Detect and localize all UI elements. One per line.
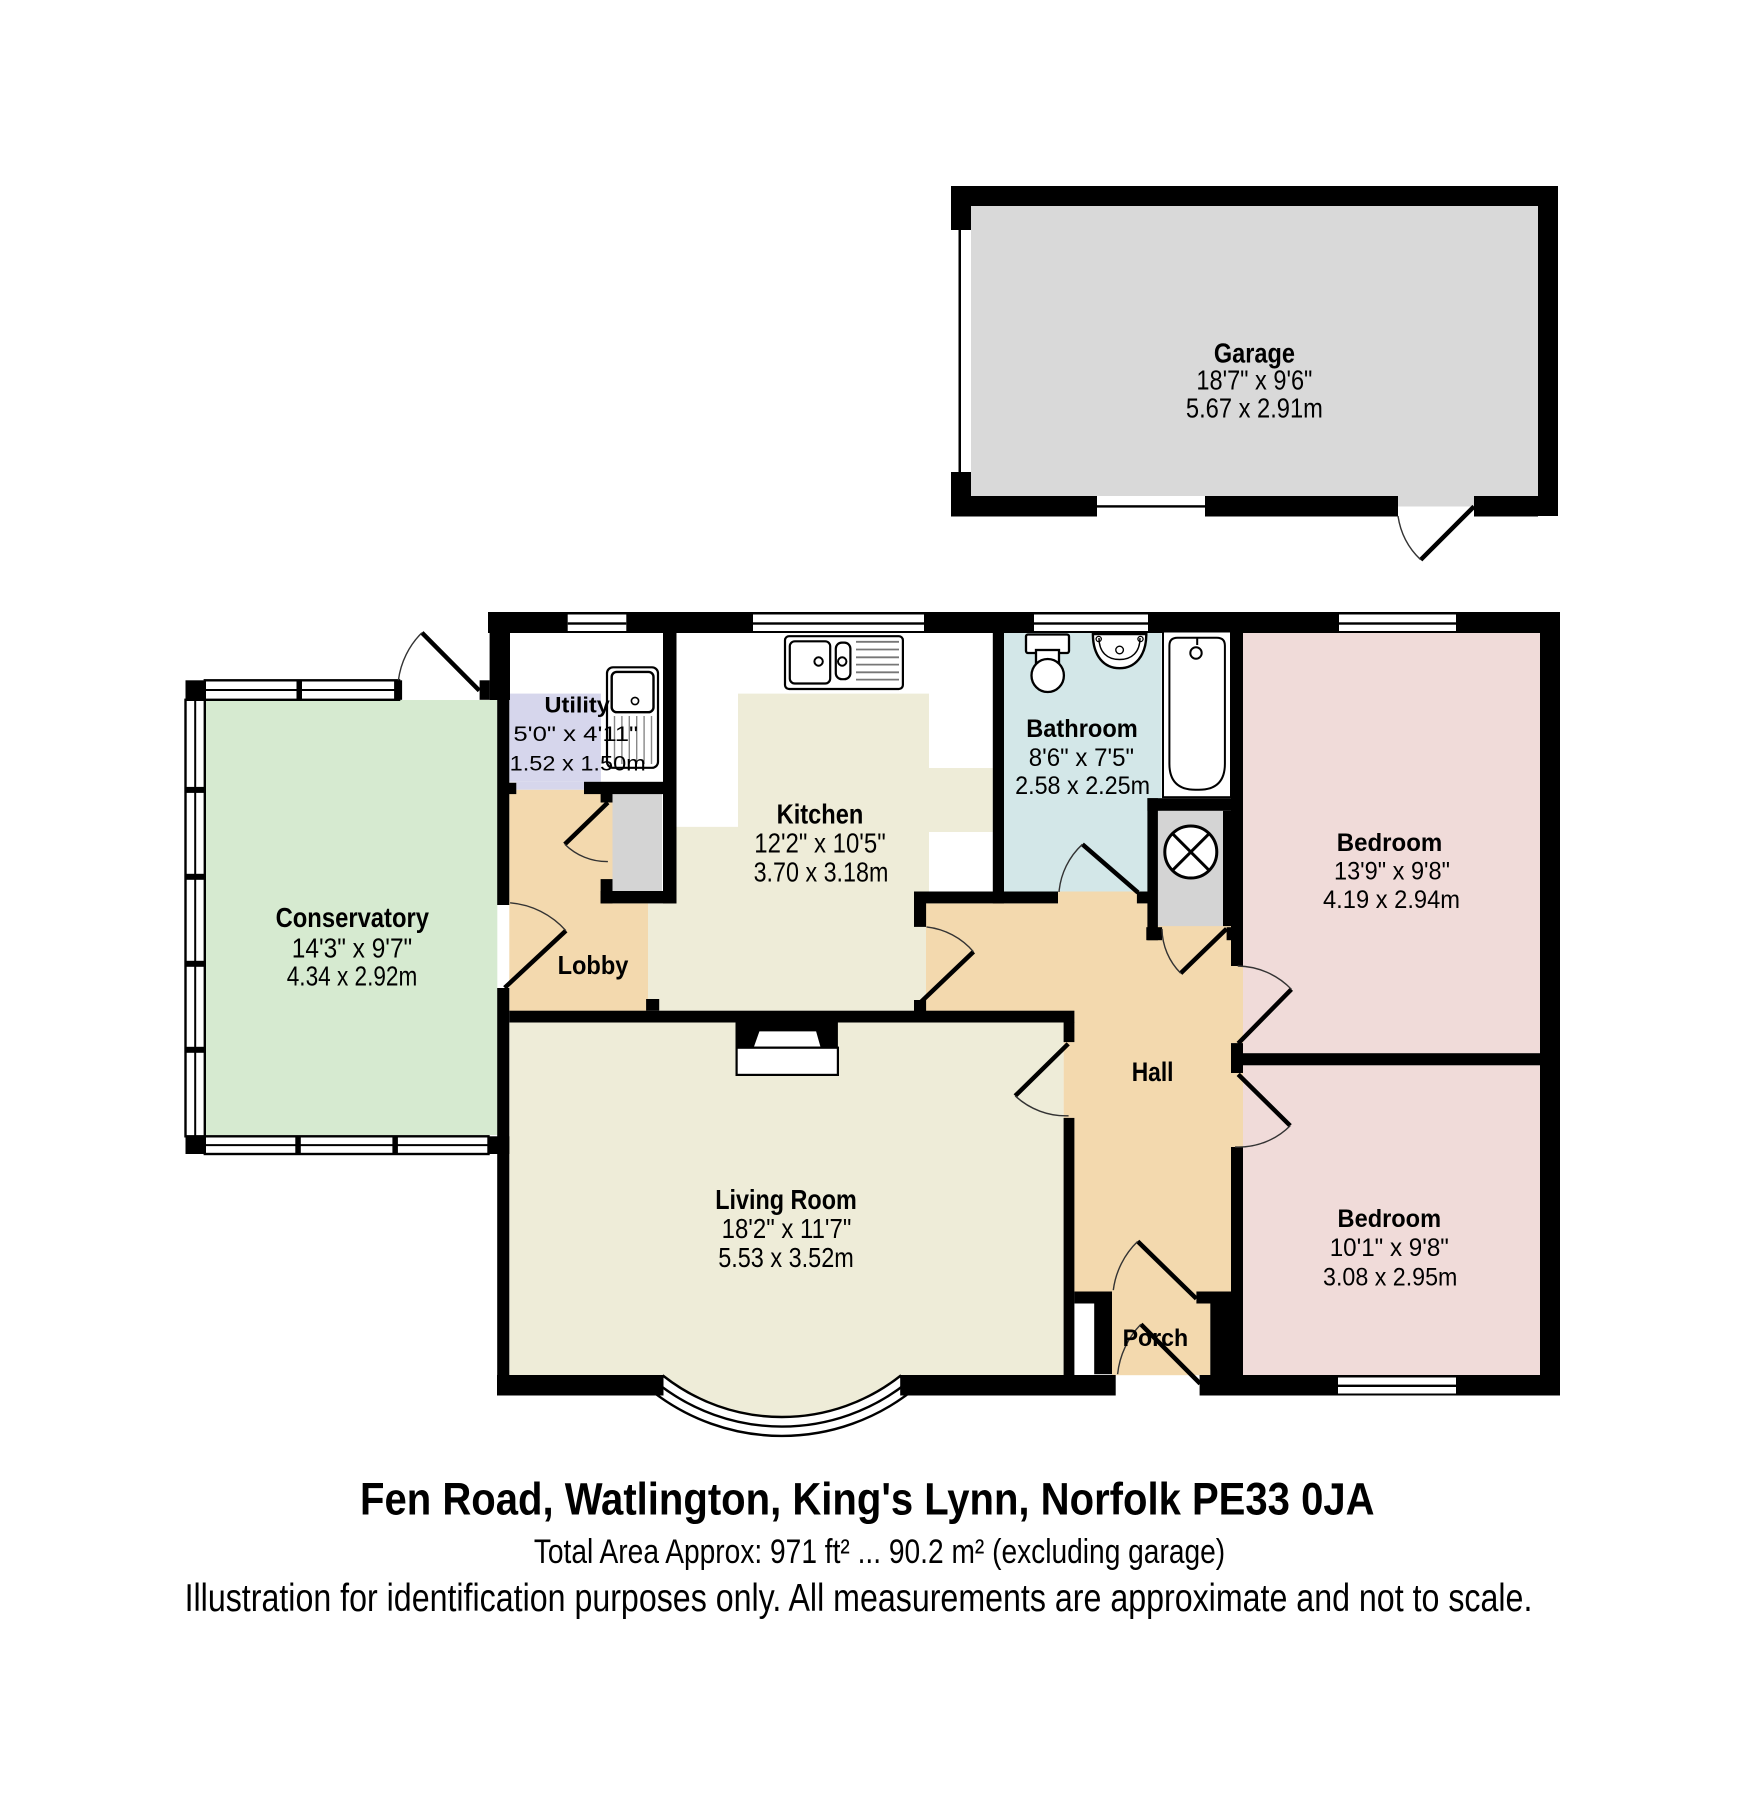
- svg-text:5'0" x 4'11": 5'0" x 4'11": [513, 722, 638, 746]
- svg-text:8'6" x 7'5": 8'6" x 7'5": [1029, 744, 1134, 772]
- svg-text:2.58 x 2.25m: 2.58 x 2.25m: [1015, 772, 1150, 800]
- svg-text:14'3" x 9'7": 14'3" x 9'7": [292, 932, 413, 963]
- svg-text:10'1" x 9'8": 10'1" x 9'8": [1330, 1234, 1449, 1262]
- svg-text:18'7" x 9'6": 18'7" x 9'6": [1196, 365, 1312, 396]
- svg-text:3.70 x 3.18m: 3.70 x 3.18m: [754, 857, 889, 888]
- svg-text:Illustration for identificatio: Illustration for identification purposes…: [185, 1577, 1533, 1620]
- svg-text:Bedroom: Bedroom: [1337, 829, 1443, 857]
- svg-text:Hall: Hall: [1132, 1057, 1174, 1087]
- svg-text:Porch: Porch: [1123, 1325, 1189, 1352]
- svg-text:Bedroom: Bedroom: [1338, 1205, 1442, 1233]
- svg-text:Total Area Approx: 971 ft² ...: Total Area Approx: 971 ft² ... 90.2 m² (…: [534, 1533, 1225, 1571]
- svg-text:Conservatory: Conservatory: [276, 902, 430, 933]
- svg-text:12'2" x 10'5": 12'2" x 10'5": [754, 828, 885, 859]
- svg-text:1.52 x 1.50m: 1.52 x 1.50m: [510, 751, 646, 775]
- svg-text:4.19 x 2.94m: 4.19 x 2.94m: [1323, 886, 1460, 914]
- svg-text:13'9" x 9'8": 13'9" x 9'8": [1334, 858, 1450, 886]
- svg-text:5.53 x 3.52m: 5.53 x 3.52m: [718, 1242, 854, 1273]
- svg-text:3.08 x 2.95m: 3.08 x 2.95m: [1323, 1263, 1457, 1291]
- svg-text:5.67 x 2.91m: 5.67 x 2.91m: [1186, 393, 1323, 424]
- svg-text:18'2" x 11'7": 18'2" x 11'7": [722, 1213, 852, 1244]
- svg-text:4.34 x 2.92m: 4.34 x 2.92m: [287, 960, 418, 991]
- svg-text:Kitchen: Kitchen: [777, 799, 864, 830]
- svg-text:Utility: Utility: [545, 693, 611, 718]
- svg-text:Bathroom: Bathroom: [1026, 715, 1138, 743]
- svg-text:Living Room: Living Room: [715, 1184, 857, 1215]
- svg-text:Fen Road, Watlington, King's L: Fen Road, Watlington, King's Lynn, Norfo…: [360, 1474, 1375, 1525]
- svg-text:Lobby: Lobby: [558, 950, 629, 980]
